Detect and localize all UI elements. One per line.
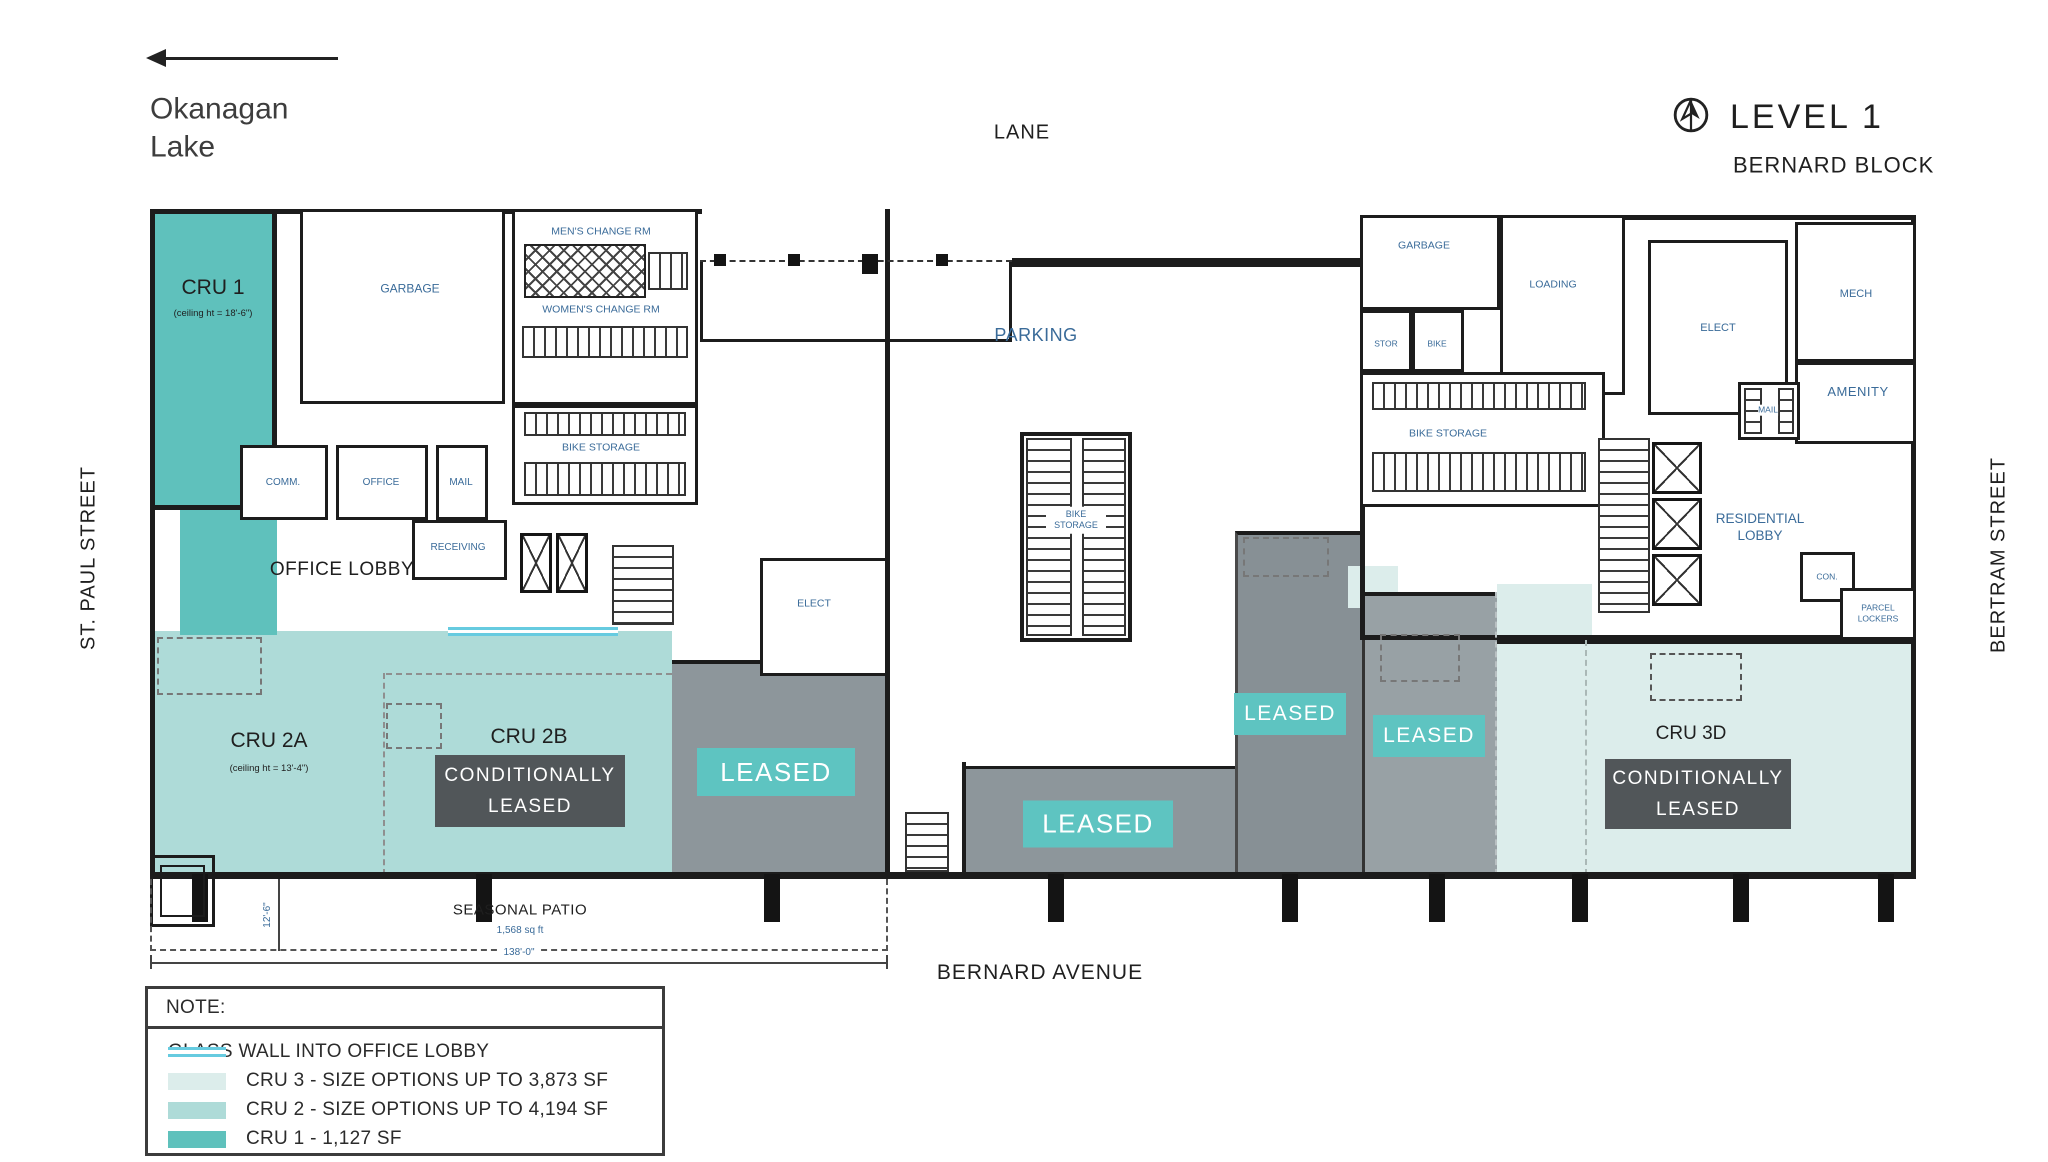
legend-title: NOTE: bbox=[166, 997, 226, 1019]
lockers-hatch bbox=[524, 244, 646, 298]
patio-label: SEASONAL PATIO bbox=[453, 902, 587, 921]
room-loading bbox=[1500, 215, 1625, 395]
patio-width-dim: 138'-0" bbox=[499, 947, 538, 960]
compass-north-icon bbox=[1672, 96, 1710, 134]
room-cru1-lower bbox=[180, 510, 277, 635]
east-wall-lower bbox=[1911, 640, 1916, 879]
cru2-swatch bbox=[168, 1102, 226, 1119]
legend-title-row: NOTE: bbox=[148, 989, 662, 1029]
parking-north-wall bbox=[1012, 258, 1360, 267]
stair-west bbox=[612, 545, 674, 625]
column bbox=[1572, 874, 1588, 922]
lane-recess bbox=[702, 209, 885, 259]
room-label-womens-change: WOMEN'S CHANGE RM bbox=[542, 303, 660, 316]
page-title: LEVEL 1 bbox=[1730, 96, 1884, 139]
glass-wall-office-lobby bbox=[448, 627, 618, 636]
room-label-mens-change: MEN'S CHANGE RM bbox=[551, 225, 650, 238]
legend-row-cru1: CRU 1 - 1,127 SF bbox=[168, 1128, 402, 1150]
street-west-label: ST. PAUL STREET bbox=[77, 466, 102, 650]
room-elect-west bbox=[760, 558, 888, 676]
lake-arrow-line bbox=[160, 57, 338, 60]
room-label-elect-east: ELECT bbox=[1700, 322, 1735, 336]
room-label-amenity: AMENITY bbox=[1827, 384, 1888, 400]
divider-cru3d bbox=[1585, 640, 1587, 875]
glass-wall-swatch bbox=[168, 1047, 226, 1057]
patio-area: 1,568 sq ft bbox=[497, 925, 544, 938]
divider-cru2a-2b bbox=[383, 673, 385, 875]
room-label-parking: PARKING bbox=[994, 324, 1077, 347]
stair-east bbox=[1598, 438, 1650, 613]
room-label-elect-west: ELECT bbox=[797, 597, 831, 610]
patio-depth-dim-line bbox=[278, 879, 280, 951]
room-label-office: OFFICE bbox=[363, 477, 400, 490]
badge-conditionally-leased-east: CONDITIONALLY LEASED bbox=[1605, 759, 1791, 829]
bike-rack-1 bbox=[524, 412, 686, 436]
badge-leased-3: LEASED bbox=[1234, 693, 1346, 735]
bike-rack-east-2 bbox=[1372, 452, 1586, 492]
room-label-bike-storage-east: BIKE STORAGE bbox=[1409, 427, 1487, 440]
room-label-receiving: RECEIVING bbox=[430, 542, 485, 555]
street-south-label: BERNARD AVENUE bbox=[937, 960, 1143, 986]
unit-label-cru1: CRU 1 bbox=[181, 275, 244, 301]
room-label-con: CON. bbox=[1816, 572, 1837, 583]
badge-leased-4: LEASED bbox=[1373, 715, 1485, 757]
patio-depth-dim: 12'-6" bbox=[262, 902, 275, 927]
divider-cru2b-top bbox=[386, 673, 672, 675]
unit-label-cru2b: CRU 2B bbox=[490, 724, 567, 750]
legend-box: NOTE: GLASS WALL INTO OFFICE LOBBY CRU 3… bbox=[145, 986, 665, 1156]
washroom-leased-east-2 bbox=[1380, 634, 1460, 682]
badge-leased-1: LEASED bbox=[697, 748, 855, 796]
column bbox=[1048, 874, 1064, 922]
elevator-east-3 bbox=[1652, 554, 1702, 606]
street-north-label: LANE bbox=[994, 121, 1050, 146]
south-wall bbox=[150, 872, 1916, 879]
stair-bike-center-left bbox=[1026, 438, 1072, 636]
stair-bike-center-right bbox=[1082, 438, 1126, 636]
room-label-residential-lobby: RESIDENTIAL LOBBY bbox=[1695, 511, 1825, 545]
room-label-bike-east: BIKE bbox=[1427, 339, 1446, 350]
legend-label-cru1: CRU 1 - 1,127 SF bbox=[246, 1128, 402, 1150]
badge-conditionally-leased-west: CONDITIONALLY LEASED bbox=[435, 755, 625, 827]
elevator-west-2 bbox=[556, 533, 588, 593]
room-garbage-west bbox=[300, 209, 505, 404]
unit-ceiling-cru2a: (ceiling ht = 13'-4") bbox=[230, 763, 309, 775]
lockers-row bbox=[522, 326, 688, 358]
room-label-mail-west: MAIL bbox=[449, 477, 472, 490]
badge-leased-2: LEASED bbox=[1023, 801, 1173, 848]
corridor-wall-right bbox=[962, 762, 966, 875]
lake-arrow-icon bbox=[146, 49, 166, 67]
patio-width-dim-line bbox=[150, 962, 888, 964]
cru3-swatch bbox=[168, 1073, 226, 1090]
mail-slots-2 bbox=[1778, 388, 1794, 434]
washroom-cru2b bbox=[386, 703, 442, 749]
divider-leased-cru3 bbox=[1495, 592, 1497, 875]
legend-label-cru3: CRU 3 - SIZE OPTIONS UP TO 3,873 SF bbox=[246, 1070, 608, 1092]
unit-label-cru3d: CRU 3D bbox=[1656, 722, 1727, 746]
room-label-office-lobby: OFFICE LOBBY bbox=[270, 558, 414, 582]
bike-rack-2 bbox=[524, 462, 686, 496]
page-subtitle: BERNARD BLOCK bbox=[1733, 151, 1934, 179]
loading-canopy bbox=[700, 262, 1012, 342]
room-label-mech: MECH bbox=[1840, 288, 1872, 302]
washroom-cru2a bbox=[157, 637, 262, 695]
cru1-swatch bbox=[168, 1131, 226, 1148]
room-label-garbage-east: GARBAGE bbox=[1398, 239, 1450, 252]
room-label-stor: STOR bbox=[1374, 339, 1397, 350]
dim-tick bbox=[886, 955, 888, 969]
room-label-loading: LOADING bbox=[1529, 278, 1576, 291]
legend-row-cru2: CRU 2 - SIZE OPTIONS UP TO 4,194 SF bbox=[168, 1099, 608, 1121]
column bbox=[1878, 874, 1894, 922]
floor-plan: Okanagan Lake LANE LEVEL 1 BERNARD BLOCK… bbox=[0, 0, 2048, 1162]
bike-rack-east-1 bbox=[1372, 382, 1586, 410]
column bbox=[1733, 874, 1749, 922]
room-label-parcel-lockers: PARCEL LOCKERS bbox=[1843, 602, 1913, 623]
room-label-mail-east: MAIL bbox=[1758, 405, 1778, 416]
legend-row-cru3: CRU 3 - SIZE OPTIONS UP TO 3,873 SF bbox=[168, 1070, 608, 1092]
lake-label: Okanagan Lake bbox=[150, 91, 330, 166]
corridor-stair bbox=[905, 812, 949, 872]
washroom-cru3d bbox=[1650, 653, 1742, 701]
washroom-leased-east-1 bbox=[1243, 537, 1329, 577]
legend-label-cru2: CRU 2 - SIZE OPTIONS UP TO 4,194 SF bbox=[246, 1099, 608, 1121]
elevator-west-1 bbox=[520, 533, 552, 593]
column bbox=[1429, 874, 1445, 922]
unit-ceiling-cru1: (ceiling ht = 18'-6") bbox=[174, 308, 253, 320]
room-label-bike-storage-center: BIKE STORAGE bbox=[1046, 507, 1106, 534]
room-garbage-east bbox=[1360, 215, 1500, 310]
legend-row-glass: GLASS WALL INTO OFFICE LOBBY bbox=[168, 1041, 489, 1063]
room-label-bike-storage-west: BIKE STORAGE bbox=[562, 441, 640, 454]
change-benches bbox=[648, 252, 688, 290]
room-label-garbage-west: GARBAGE bbox=[380, 282, 439, 297]
elevator-east-1 bbox=[1652, 442, 1702, 494]
room-amenity bbox=[1795, 362, 1916, 444]
corridor-wall-left bbox=[885, 655, 890, 875]
unit-label-cru2a: CRU 2A bbox=[230, 728, 307, 754]
street-east-label: BERTRAM STREET bbox=[1987, 457, 2012, 653]
column bbox=[1282, 874, 1298, 922]
room-label-comm: COMM. bbox=[266, 477, 300, 490]
dim-tick bbox=[150, 955, 152, 969]
